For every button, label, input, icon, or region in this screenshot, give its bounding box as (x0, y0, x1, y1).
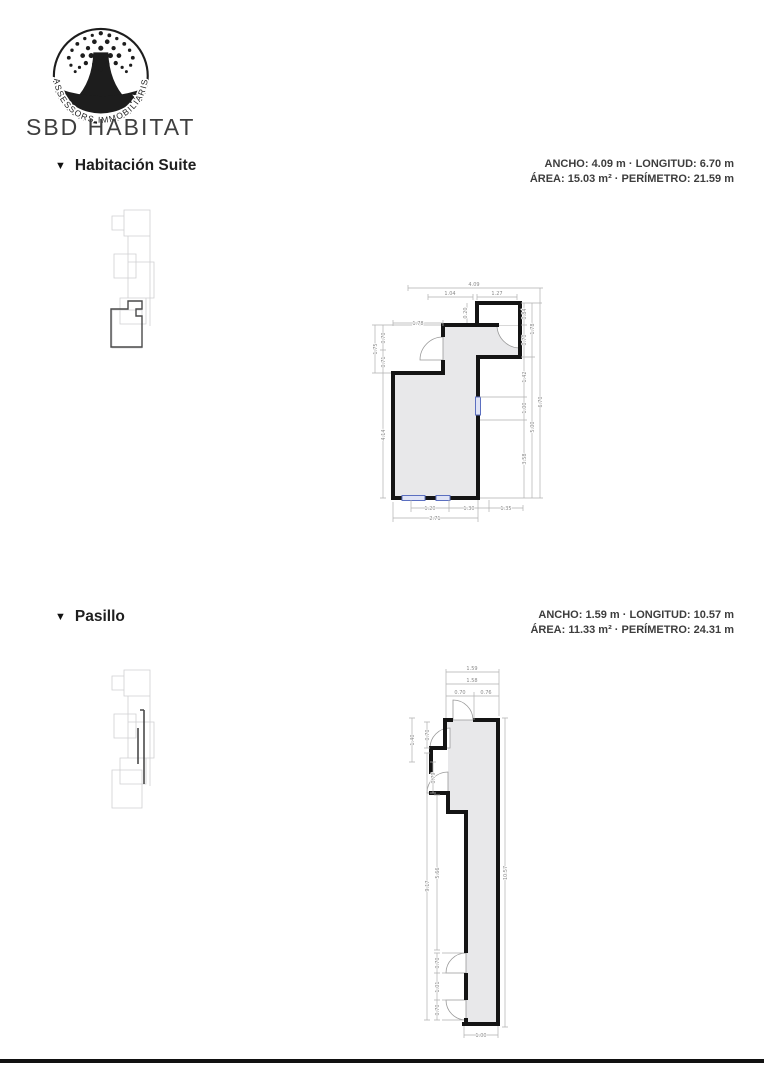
dim-label: 9.17 (425, 880, 431, 891)
dim-label: 0.70 (454, 690, 465, 696)
pasillo-stats-line1: ANCHO: 1.59 m · LONGITUD: 10.57 m (530, 608, 734, 623)
minimap-pasillo (98, 666, 168, 821)
triangle-marker-icon: ▼ (55, 611, 66, 623)
dim-label: 1.59 (466, 666, 477, 672)
dim-label: 1.58 (466, 678, 477, 684)
dim-label: 1.75 (373, 343, 379, 354)
dim-label: 4.14 (381, 429, 387, 440)
section-title-text: Habitación Suite (75, 157, 196, 174)
dim-label: 5.00 (530, 421, 536, 432)
corridor-area (445, 720, 498, 1024)
dim-label: 0.70 (435, 1004, 441, 1015)
dim-label: 3.58 (522, 453, 528, 464)
dim-label: 1.27 (491, 291, 502, 297)
section-title-text: Pasillo (75, 608, 125, 625)
suite-stats: ANCHO: 4.09 m · LONGITUD: 6.70 m ÁREA: 1… (530, 157, 734, 187)
dim-label: 0.70 (425, 729, 431, 740)
dim-label: 6.70 (538, 396, 544, 407)
dim-label: 0.79 (431, 772, 437, 783)
dim-label: 0.70 (381, 332, 387, 343)
dim-label: 0.70 (435, 957, 441, 968)
door-arc (453, 700, 473, 720)
dim-label: 1.78 (412, 321, 423, 327)
dim-label: 0.76 (480, 690, 491, 696)
triangle-marker-icon: ▼ (55, 160, 66, 172)
pasillo-stats: ANCHO: 1.59 m · LONGITUD: 10.57 m ÁREA: … (530, 608, 734, 638)
window (436, 496, 450, 501)
dim-label: 1.40 (410, 734, 416, 745)
section-title-pasillo: ▼Pasillo (55, 608, 125, 626)
dim-label: 4.09 (468, 282, 479, 288)
dim-label: 1.78 (530, 323, 536, 334)
door-arc (446, 1000, 466, 1020)
minimap-highlight-pasillo (138, 710, 144, 784)
door-arc (446, 953, 466, 973)
dim-label: 0.20 (463, 307, 469, 318)
window (402, 496, 425, 501)
page-footer-rule (0, 1059, 764, 1063)
floorplan-suite: 4.09 1.04 1.27 1.78 0.20 1.75 0.70 0.71 … (365, 272, 565, 537)
dim-label: 0.71 (381, 356, 387, 367)
dim-label: 5.66 (435, 867, 441, 878)
dim-label: 1.35 (500, 506, 511, 512)
window (476, 397, 481, 415)
dim-label: 2.71 (429, 516, 440, 522)
dim-label: 1.04 (444, 291, 455, 297)
dim-label: 1.01 (435, 981, 441, 992)
room-area (393, 325, 520, 498)
logo-tree-icon: ASSESSORS IMMOBILIARIS (52, 29, 150, 125)
closet-nook (477, 303, 520, 325)
dim-label: 0.84 (522, 308, 528, 319)
dim-label: 0.70 (522, 334, 528, 345)
dim-label: 10.57 (503, 866, 509, 880)
suite-stats-line2: ÁREA: 15.03 m² · PERÍMETRO: 21.59 m (530, 172, 734, 187)
brand-name: SBD HABITAT (26, 114, 195, 141)
minimap-suite (98, 206, 168, 361)
dim-label: 1.00 (475, 1033, 486, 1039)
document-page: ASSESSORS IMMOBILIARIS SBD HABITAT ▼Habi… (0, 0, 764, 1080)
dim-label: 1.30 (463, 506, 474, 512)
suite-stats-line1: ANCHO: 4.09 m · LONGITUD: 6.70 m (530, 157, 734, 172)
pasillo-stats-line2: ÁREA: 11.33 m² · PERÍMETRO: 24.31 m (530, 623, 734, 638)
dim-label: 1.42 (522, 371, 528, 382)
dim-label: 1.00 (522, 402, 528, 413)
door-arc (420, 337, 443, 360)
section-title-suite: ▼Habitación Suite (55, 157, 196, 175)
floorplan-pasillo: 1.59 1.58 0.70 0.76 1.40 0.70 0.79 9.17 … (398, 658, 553, 1043)
dim-label: 1.20 (424, 506, 435, 512)
